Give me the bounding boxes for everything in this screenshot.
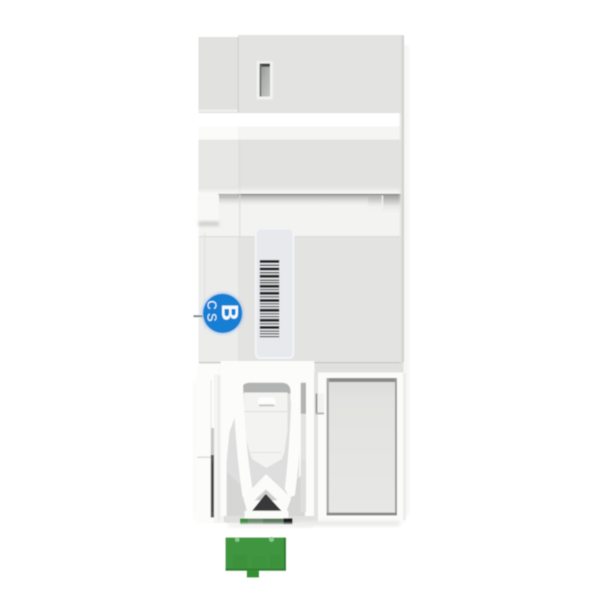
svg-text:B: B	[217, 304, 243, 321]
